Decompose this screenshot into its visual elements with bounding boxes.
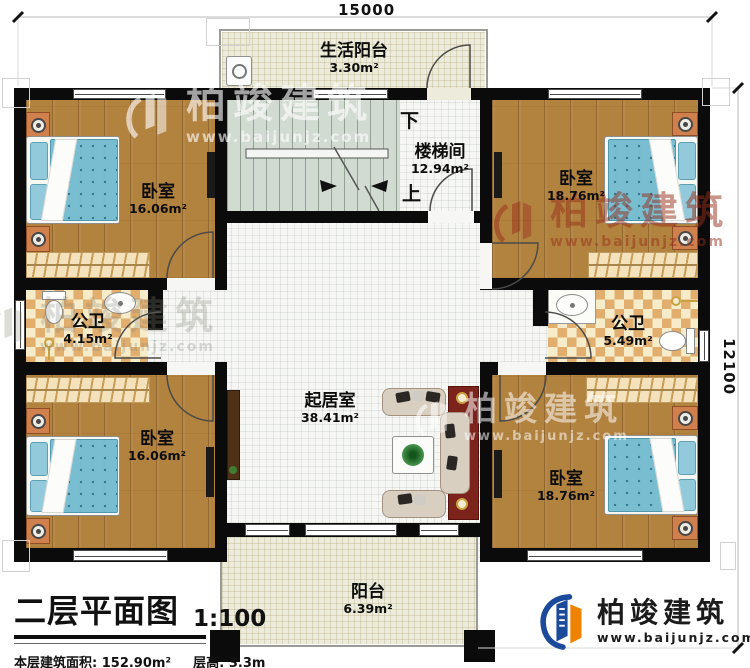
lamp-icon xyxy=(678,117,693,132)
stair-down-label: 下 xyxy=(400,106,419,133)
lamp-icon xyxy=(678,411,693,426)
room-label-stairwell: 楼梯间12.94m² xyxy=(411,143,469,176)
plant-small xyxy=(229,466,237,474)
floor-plan-canvas: 柏竣建筑 www.baijunjz.com 柏竣建筑 www.baijunjz.… xyxy=(0,0,750,668)
room-label-living-room: 起居室38.41m² xyxy=(301,392,359,425)
toilet-bowl xyxy=(45,300,63,324)
lamp-icon xyxy=(31,232,46,247)
window xyxy=(527,550,643,561)
wardrobe xyxy=(586,377,698,403)
door-opening xyxy=(427,88,471,100)
title-underline xyxy=(14,635,206,639)
lamp-icon xyxy=(31,524,46,539)
nightstand xyxy=(672,406,698,430)
window xyxy=(699,330,709,362)
window xyxy=(548,89,642,99)
floor-height-label: 层高: 3.3m xyxy=(193,652,265,668)
nightstand xyxy=(672,226,698,250)
window xyxy=(313,89,388,99)
bed xyxy=(26,436,120,516)
door-opening xyxy=(167,362,215,375)
lamp-icon xyxy=(678,231,693,246)
toilet-bowl xyxy=(659,331,686,351)
room-label-bedroom-bottom-left: 卧室16.06m² xyxy=(128,430,186,463)
pillow xyxy=(425,391,440,403)
nightstand xyxy=(26,408,50,434)
brand-logo-icon xyxy=(536,592,588,652)
floor-drain-stem xyxy=(48,347,50,360)
bed xyxy=(604,136,698,224)
pillow xyxy=(412,390,425,401)
nightstand xyxy=(672,516,698,540)
sink xyxy=(104,292,136,314)
tv xyxy=(494,450,502,498)
plan-scale: 1:100 xyxy=(193,606,266,632)
stair-up-label: 上 xyxy=(402,179,421,206)
shower-icon xyxy=(671,296,681,306)
wardrobe xyxy=(588,252,698,278)
dim-extension xyxy=(2,78,30,108)
window xyxy=(245,524,290,536)
door-opening xyxy=(498,362,546,375)
plant-icon xyxy=(402,444,424,466)
bed xyxy=(604,435,698,515)
wardrobe xyxy=(26,377,150,403)
shower-arm xyxy=(681,300,698,302)
window xyxy=(419,524,459,536)
tv xyxy=(207,152,215,198)
bed xyxy=(26,136,120,224)
dimension-top: 15000 xyxy=(338,1,395,19)
brand-logo: 柏竣建筑 www.baijunjz.com xyxy=(536,592,750,652)
toilet xyxy=(686,328,695,354)
nightstand xyxy=(672,112,698,136)
lamp-icon xyxy=(31,414,46,429)
pillow xyxy=(414,494,427,505)
window xyxy=(73,89,166,99)
title-underline-thin xyxy=(14,643,206,644)
floor-lamp-icon xyxy=(456,498,468,510)
room-label-life-balcony: 生活阳台3.30m² xyxy=(320,42,388,75)
lamp-icon xyxy=(678,521,693,536)
door-opening xyxy=(480,243,492,289)
room-label-bath-right: 公卫5.49m² xyxy=(603,315,652,348)
dim-extension xyxy=(2,540,30,572)
wardrobe xyxy=(26,252,150,278)
pillow xyxy=(397,493,412,505)
dim-extension xyxy=(206,18,250,46)
toilet xyxy=(42,291,66,300)
nightstand xyxy=(26,112,50,138)
sink xyxy=(556,294,588,316)
brand-name: 柏竣建筑 xyxy=(597,599,750,627)
nightstand xyxy=(26,226,50,252)
window xyxy=(73,550,168,561)
balcony-pillar xyxy=(464,630,495,662)
sliding-door xyxy=(305,524,397,536)
plan-title: 二层平面图 xyxy=(14,586,179,632)
tv xyxy=(206,447,214,497)
room-label-bedroom-bottom-right: 卧室18.76m² xyxy=(537,470,595,503)
wall xyxy=(492,278,698,290)
stair-treads xyxy=(227,100,400,211)
tv xyxy=(494,152,502,198)
wall xyxy=(148,290,163,330)
lamp-icon xyxy=(31,118,46,133)
wall xyxy=(698,88,710,562)
washing-machine xyxy=(226,56,252,86)
window xyxy=(15,300,25,350)
title-block: 二层平面图 1:100 本层建筑面积: 152.90m² 层高: 3.3m xyxy=(14,586,266,668)
dim-extension xyxy=(720,542,736,570)
floor-area-label: 本层建筑面积: 152.90m² xyxy=(14,652,171,668)
pillow xyxy=(444,423,456,438)
door-opening xyxy=(167,278,215,290)
room-label-bedroom-top-right: 卧室18.76m² xyxy=(547,170,605,203)
room-label-bath-left: 公卫4.15m² xyxy=(63,313,112,346)
wall xyxy=(533,290,548,326)
door-opening xyxy=(428,211,474,223)
wall xyxy=(215,100,227,290)
pillow xyxy=(446,455,458,470)
room-label-bedroom-top-left: 卧室16.06m² xyxy=(129,183,187,216)
dimension-right: 12100 xyxy=(720,338,738,395)
brand-url: www.baijunjz.com xyxy=(597,630,750,645)
floor-lamp-icon xyxy=(456,392,468,404)
room-label-balcony: 阳台6.39m² xyxy=(343,583,392,616)
dim-extension xyxy=(702,78,730,106)
coffee-table xyxy=(392,436,434,474)
